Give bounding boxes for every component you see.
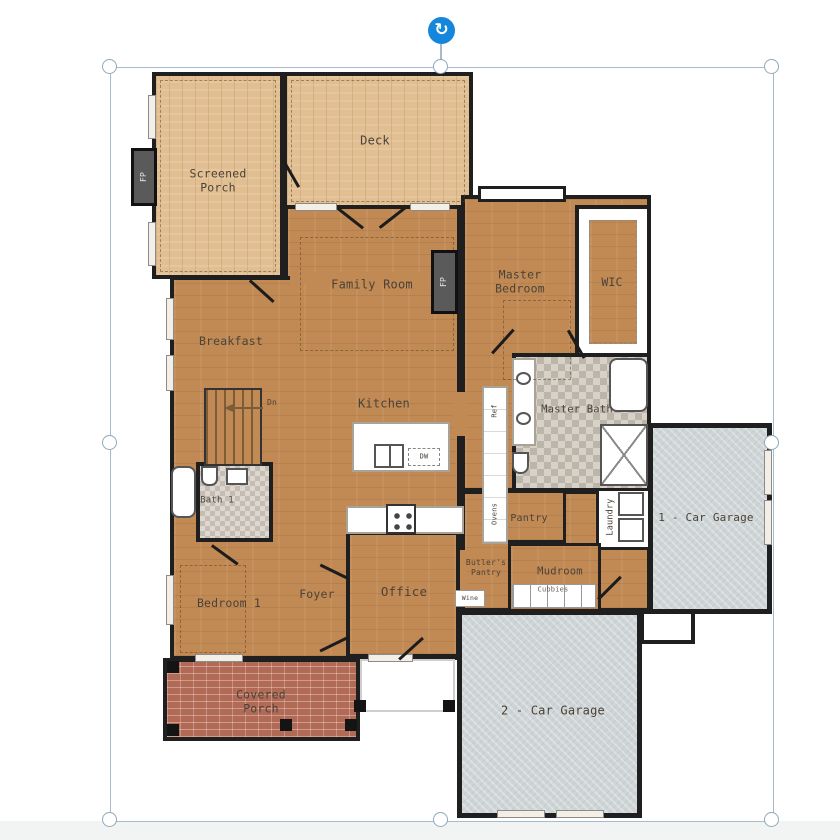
resize-handle-top-right[interactable] [764, 59, 779, 74]
resize-handle-top-center[interactable] [433, 59, 448, 74]
document-canvas: Screened Porch Deck Family Room Master B… [0, 0, 840, 840]
image-selection-outline [110, 67, 774, 822]
resize-handle-mid-right[interactable] [764, 435, 779, 450]
resize-handle-top-left[interactable] [102, 59, 117, 74]
resize-handle-mid-left[interactable] [102, 435, 117, 450]
resize-handle-bottom-center[interactable] [433, 812, 448, 827]
resize-handle-bottom-left[interactable] [102, 812, 117, 827]
rotate-icon: ↻ [434, 20, 448, 40]
page-bottom-margin [0, 821, 840, 840]
rotate-handle[interactable]: ↻ [428, 17, 455, 44]
resize-handle-bottom-right[interactable] [764, 812, 779, 827]
